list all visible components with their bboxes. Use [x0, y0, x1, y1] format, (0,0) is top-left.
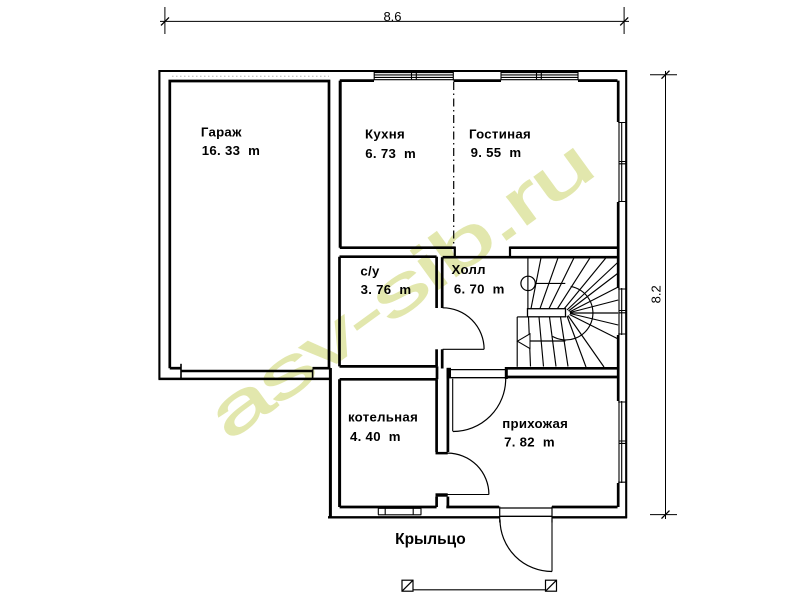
- svg-text:7. 82 m: 7. 82 m: [504, 434, 555, 449]
- svg-text:3. 76 m: 3. 76 m: [361, 282, 412, 297]
- svg-text:9. 55 m: 9. 55 m: [471, 145, 522, 160]
- svg-text:16. 33 m: 16. 33 m: [202, 143, 260, 158]
- svg-text:8.2: 8.2: [649, 285, 664, 303]
- svg-text:Гостиная: Гостиная: [469, 126, 531, 141]
- svg-text:Гараж: Гараж: [201, 125, 242, 140]
- svg-text:Кухня: Кухня: [365, 127, 405, 142]
- svg-text:6. 70 m: 6. 70 m: [454, 281, 505, 296]
- svg-text:Крыльцо: Крыльцо: [395, 531, 466, 548]
- svg-text:6. 73 m: 6. 73 m: [365, 146, 416, 161]
- svg-text:котельная: котельная: [348, 409, 418, 424]
- svg-text:8.6: 8.6: [383, 9, 401, 24]
- svg-text:4. 40 m: 4. 40 m: [350, 429, 401, 444]
- svg-text:прихожая: прихожая: [502, 416, 568, 431]
- svg-text:Холл: Холл: [452, 262, 486, 277]
- svg-text:с/у: с/у: [360, 264, 380, 279]
